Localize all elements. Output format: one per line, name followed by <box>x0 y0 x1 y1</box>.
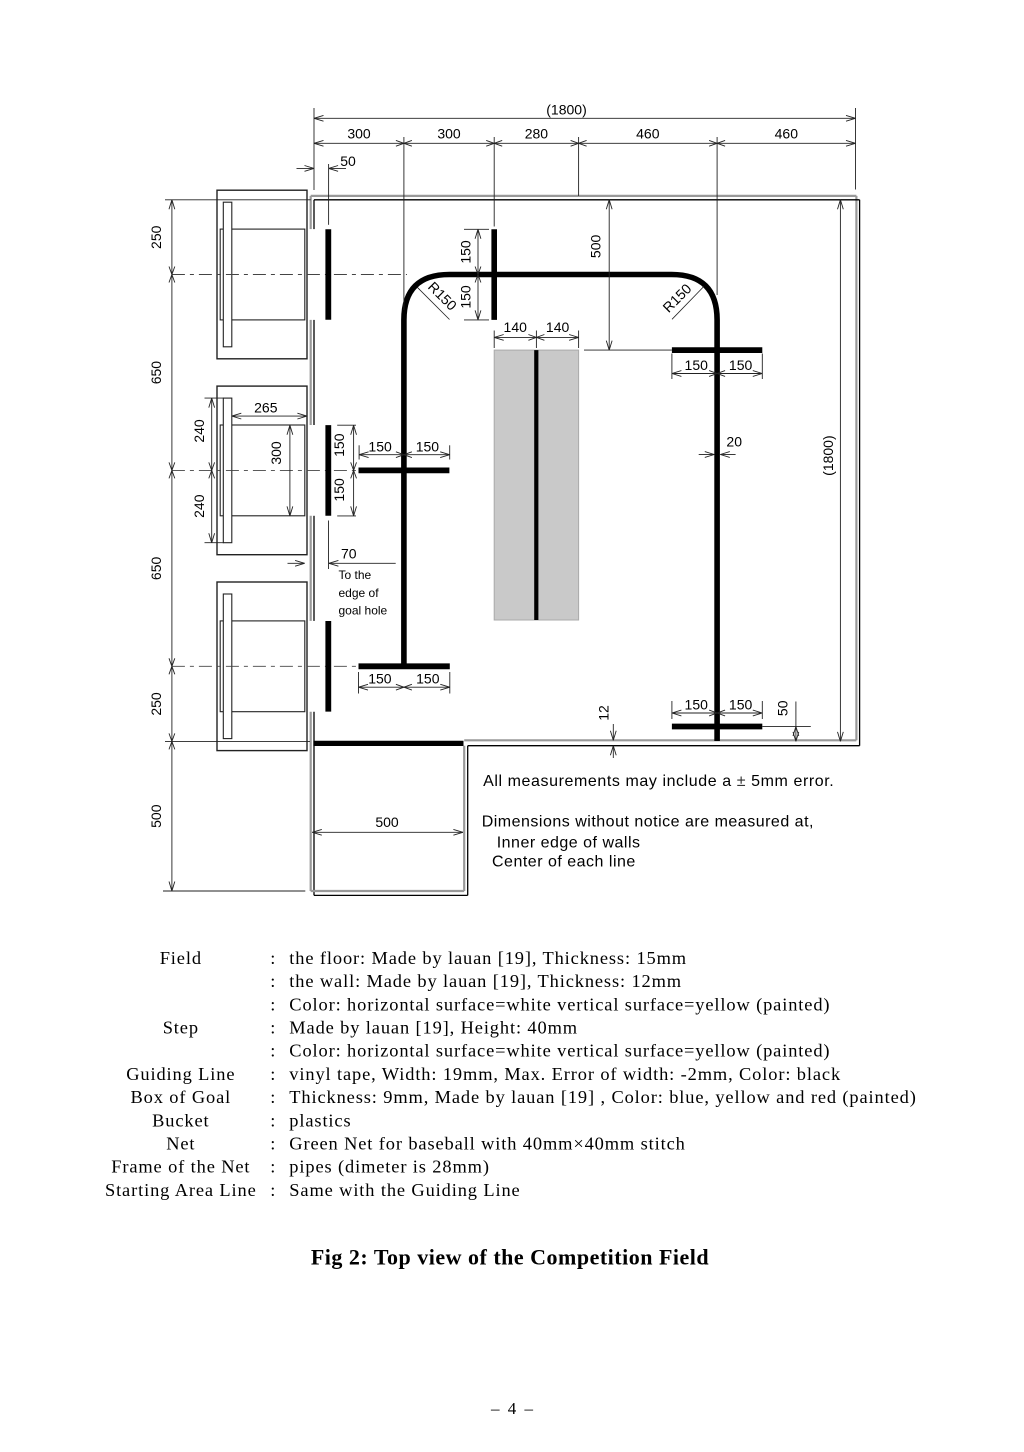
svg-text:Fig 2: Top view of the Competi: Fig 2: Top view of the Competition Field <box>311 1245 709 1270</box>
svg-text:150: 150 <box>368 438 392 454</box>
svg-text:150: 150 <box>457 240 473 264</box>
svg-text:To the: To the <box>339 568 372 582</box>
svg-text:Thickness: 9mm, Made by lauan: Thickness: 9mm, Made by lauan [19] , Col… <box>289 1087 916 1108</box>
svg-text::: : <box>270 1041 275 1061</box>
svg-text:Bucket: Bucket <box>152 1110 209 1130</box>
svg-text::: : <box>270 971 275 991</box>
svg-text:460: 460 <box>636 126 660 142</box>
svg-text:150: 150 <box>457 285 473 309</box>
svg-text:edge of: edge of <box>339 586 380 600</box>
svg-text:150: 150 <box>685 357 709 373</box>
svg-text:150: 150 <box>416 438 440 454</box>
svg-text:140: 140 <box>504 319 528 335</box>
svg-text:Inner edge of walls: Inner edge of walls <box>497 835 641 852</box>
svg-text::: : <box>270 1134 275 1154</box>
svg-text:265: 265 <box>254 399 278 415</box>
svg-text:the wall: Made by lauan [19],: the wall: Made by lauan [19], Thickness:… <box>289 971 682 991</box>
svg-text:goal hole: goal hole <box>339 604 388 618</box>
svg-text:70: 70 <box>341 546 357 562</box>
svg-text:20: 20 <box>726 433 742 449</box>
svg-text:Step: Step <box>163 1018 199 1038</box>
svg-text:vinyl tape, Width: 19mm, Max.: vinyl tape, Width: 19mm, Max. Error of w… <box>289 1064 841 1084</box>
svg-text::: : <box>270 1087 275 1107</box>
svg-text::: : <box>270 948 275 968</box>
svg-text:Guiding Line: Guiding Line <box>126 1064 235 1084</box>
svg-text:150: 150 <box>729 357 753 373</box>
svg-text:50: 50 <box>775 700 791 716</box>
svg-text:150: 150 <box>368 671 392 687</box>
svg-text:500: 500 <box>148 804 164 828</box>
svg-text:150: 150 <box>685 697 709 713</box>
svg-text:650: 650 <box>148 361 164 385</box>
svg-text:Made by lauan [19], Height: 40: Made by lauan [19], Height: 40mm <box>289 1018 578 1038</box>
svg-text:(1800): (1800) <box>820 435 836 475</box>
svg-text:150: 150 <box>416 671 440 687</box>
svg-text:Box of Goal: Box of Goal <box>130 1087 231 1107</box>
svg-text::: : <box>270 1157 275 1177</box>
svg-text:pipes (dimeter is 28mm): pipes (dimeter is 28mm) <box>289 1157 490 1178</box>
svg-text:500: 500 <box>588 235 604 259</box>
svg-text:Net: Net <box>166 1134 195 1154</box>
svg-text:Dimensions without notice are: Dimensions without notice are measured a… <box>482 814 814 831</box>
svg-text:240: 240 <box>191 494 207 518</box>
svg-text:Color: horizontal surface=whit: Color: horizontal surface=white vertical… <box>289 994 830 1015</box>
svg-text:All measurements may include a: All measurements may include a ± 5mm err… <box>483 773 834 790</box>
svg-text:the floor: Made by lauan [19],: the floor: Made by lauan [19], Thickness… <box>289 948 687 968</box>
svg-text:250: 250 <box>148 225 164 249</box>
svg-text:Center of each line: Center of each line <box>492 853 636 870</box>
svg-text:(1800): (1800) <box>546 101 586 117</box>
svg-text:Green Net for baseball with 40: Green Net for baseball with 40mm×40mm st… <box>289 1134 685 1154</box>
svg-text:Same with the Guiding Line: Same with the Guiding Line <box>289 1180 520 1200</box>
svg-text:240: 240 <box>191 419 207 443</box>
svg-text::: : <box>270 1110 275 1130</box>
svg-text:280: 280 <box>525 126 549 142</box>
svg-text:150: 150 <box>729 697 753 713</box>
svg-text:300: 300 <box>347 126 371 142</box>
svg-text:500: 500 <box>375 814 399 830</box>
svg-text:140: 140 <box>546 319 570 335</box>
svg-text::: : <box>270 1180 275 1200</box>
svg-text:Field: Field <box>160 948 202 968</box>
svg-text::: : <box>270 994 275 1014</box>
svg-text:150: 150 <box>331 478 347 502</box>
svg-text:12: 12 <box>596 705 612 721</box>
svg-text:Starting Area Line: Starting Area Line <box>105 1180 257 1200</box>
svg-text:Color: horizontal surface=whit: Color: horizontal surface=white vertical… <box>289 1041 830 1062</box>
svg-text::: : <box>270 1064 275 1084</box>
svg-text:250: 250 <box>148 692 164 716</box>
svg-text:– 4 –: – 4 – <box>490 1399 535 1418</box>
svg-text:650: 650 <box>148 557 164 581</box>
svg-text:300: 300 <box>268 441 284 465</box>
svg-text:150: 150 <box>331 433 347 457</box>
svg-text:plastics: plastics <box>289 1110 351 1130</box>
svg-text:Frame of the Net: Frame of the Net <box>111 1157 250 1177</box>
svg-text:300: 300 <box>437 126 461 142</box>
svg-text:460: 460 <box>775 126 799 142</box>
svg-text:50: 50 <box>340 153 356 169</box>
svg-text::: : <box>270 1018 275 1038</box>
